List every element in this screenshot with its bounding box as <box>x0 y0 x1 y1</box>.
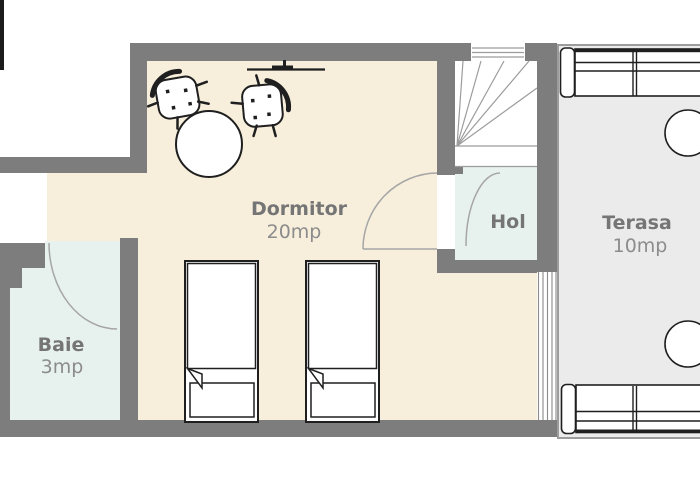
room-label-dormitor: Dormitor <box>199 198 399 220</box>
window-left-opening <box>0 173 43 243</box>
wall-right <box>537 43 557 273</box>
wall-baie-dormitor <box>120 238 138 420</box>
stair-top-opening <box>471 43 525 61</box>
stairwell <box>455 61 537 167</box>
room-area-terasa: 10mp <box>580 235 700 257</box>
window-left-frame <box>0 0 4 70</box>
wall-bottom <box>0 420 557 437</box>
wall-step-1 <box>0 243 45 268</box>
wall-hol-bottom <box>455 260 537 273</box>
wall-step-2 <box>0 268 22 288</box>
wall-hol-dormitor-upper <box>437 43 455 175</box>
floor-baie-step1 <box>45 241 120 268</box>
room-label-hol: Hol <box>448 211 568 233</box>
room-label-terasa: Terasa <box>577 212 697 234</box>
window-right-opening <box>537 272 557 420</box>
wall-left-horizontal <box>0 157 147 173</box>
wall-left-upper <box>130 43 147 157</box>
room-area-dormitor: 20mp <box>194 221 394 243</box>
floor-dormitor-top <box>147 60 437 173</box>
room-area-baie: 3mp <box>2 356 122 378</box>
wall-hol-dormitor-lower <box>437 249 455 273</box>
floor-plan: Dormitor 20mp Hol Terasa 10mp Baie 3mp <box>0 0 700 500</box>
room-label-baie: Baie <box>1 334 121 356</box>
floor-baie-step2 <box>22 268 120 288</box>
